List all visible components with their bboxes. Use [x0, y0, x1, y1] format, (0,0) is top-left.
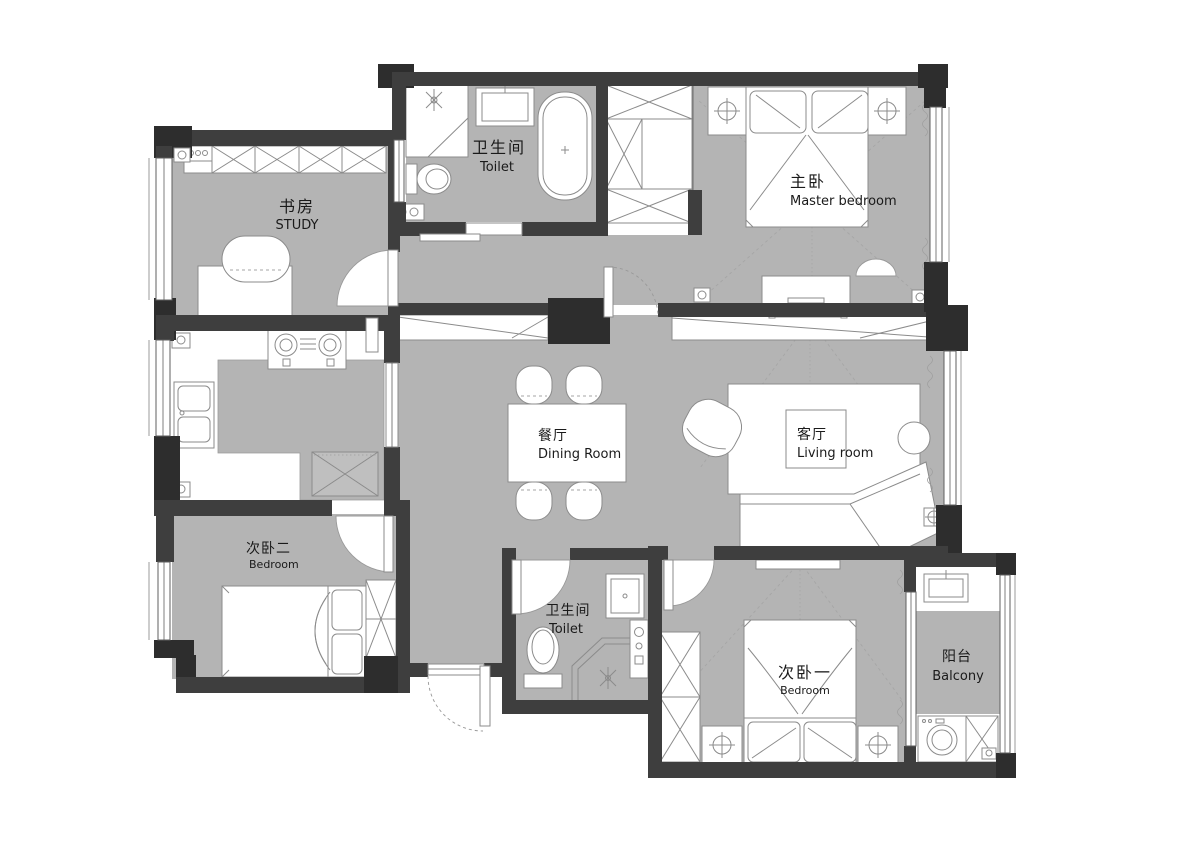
room-label-bedroom-one-zh: 次卧一 — [778, 663, 832, 682]
wall-switch-icon — [174, 148, 190, 162]
toilet-fixture — [406, 164, 451, 194]
window — [156, 158, 172, 300]
nightstand — [868, 87, 906, 135]
bathtub — [538, 92, 592, 200]
room-label-bedroom-one-en: Bedroom — [780, 684, 830, 697]
balcony-sink — [924, 570, 968, 602]
room-kitchen — [172, 329, 384, 501]
dining-chair — [516, 482, 552, 520]
window — [158, 562, 170, 640]
washing-machine — [918, 716, 966, 762]
window — [906, 592, 916, 746]
window — [944, 351, 956, 505]
nightstand — [708, 87, 746, 135]
fridge — [312, 452, 378, 496]
dining-chair — [566, 366, 602, 404]
room-label-master-zh: 主卧 — [790, 172, 826, 191]
shower — [406, 85, 468, 157]
nightstand — [858, 726, 898, 764]
tv-cabinet — [756, 560, 840, 569]
dining-chair — [516, 366, 552, 404]
room-label-dining-en: Dining Room — [538, 447, 621, 462]
room-label-living-en: Living room — [797, 446, 873, 461]
room-label-bedroom-two-en: Bedroom — [249, 558, 299, 571]
hall-cabinet — [398, 315, 548, 340]
room-label-balcony-en: Balcony — [932, 669, 984, 684]
room-label-living-zh: 客厅 — [797, 426, 827, 443]
desk-chair — [222, 236, 290, 282]
washer-column — [630, 620, 648, 678]
entry-door — [428, 664, 490, 731]
wall-switch-icon — [982, 748, 996, 759]
wardrobe-study — [184, 146, 386, 173]
window — [394, 140, 404, 202]
dining-chair — [566, 482, 602, 520]
floor-master-corridor — [398, 235, 694, 305]
bed-bedroom-two — [222, 586, 368, 677]
wardrobe-bedroom-one — [660, 632, 700, 762]
room-label-toilet-top-zh: 卫生间 — [472, 138, 526, 157]
room-label-dining-zh: 餐厅 — [538, 428, 568, 444]
wardrobe-bedroom-two — [366, 580, 396, 658]
room-label-bedroom-two-zh: 次卧二 — [246, 541, 291, 557]
room-label-study-zh: 书房 — [279, 197, 315, 216]
room-label-toilet-bottom-zh: 卫生间 — [546, 603, 591, 619]
bathroom-sink — [606, 574, 644, 618]
floor-plan: 书房 STUDY 卫生间 Toilet — [0, 0, 1200, 848]
closet — [606, 85, 692, 223]
window — [1000, 575, 1010, 753]
floor-plan-canvas: 书房 STUDY 卫生间 Toilet — [0, 0, 1200, 848]
room-label-study-en: STUDY — [276, 218, 319, 233]
nightstand — [702, 726, 742, 764]
stove — [268, 329, 346, 369]
room-label-toilet-bottom-en: Toilet — [548, 622, 583, 637]
window — [156, 340, 170, 436]
room-label-toilet-top-en: Toilet — [479, 160, 514, 175]
window — [930, 107, 942, 262]
side-table — [898, 422, 930, 454]
bathroom-sink — [476, 84, 534, 126]
room-label-master-en: Master bedroom — [790, 194, 897, 209]
room-label-balcony-zh: 阳台 — [942, 649, 972, 665]
